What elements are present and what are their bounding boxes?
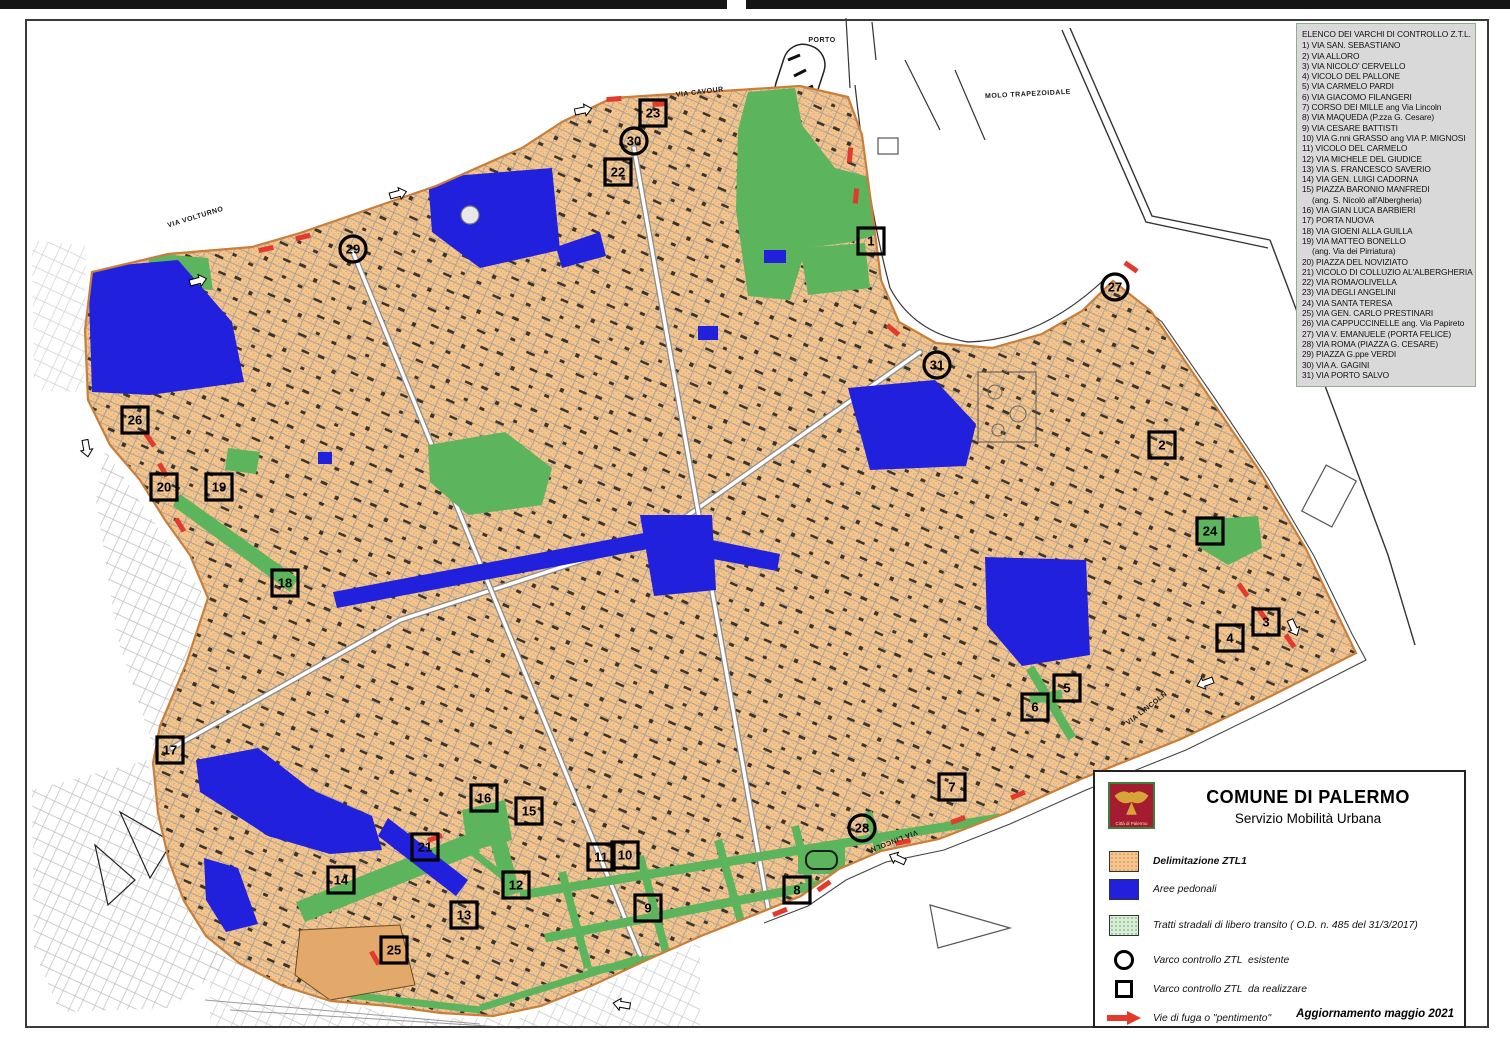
svg-text:16: 16 [477, 791, 491, 806]
svg-text:25: 25 [387, 943, 401, 958]
map-sheet-page: VIA VOLTURNOVIA CAVOURPORTOMOLO TRAPEZOI… [0, 0, 1510, 1040]
svg-text:13: 13 [457, 908, 471, 923]
legend-label: Varco controllo ZTL esistente [1153, 955, 1289, 966]
ztl-gate-list-item: 29) PIAZZA G.ppe VERDI [1302, 349, 1472, 359]
eagle-icon [1110, 784, 1153, 820]
street-label: MOLO TRAPEZOIDALE [985, 89, 1071, 100]
svg-text:2: 2 [1158, 438, 1165, 453]
legend-label: Varco controllo ZTL da realizzare [1153, 984, 1307, 995]
ztl-gate-list-item: 8) VIA MAQUEDA (P.zza G. Cesare) [1302, 112, 1472, 122]
legend-label: Tratti stradali di libero transito ( O.D… [1153, 920, 1418, 931]
ztl-gate-list-item: 26) VIA CAPPUCCINELLE ang. Via Papireto [1302, 318, 1472, 328]
svg-text:6: 6 [1031, 700, 1038, 715]
ztl-gate-list-item: 21) VICOLO DI COLLUZIO AL'ALBERGHERIA [1302, 267, 1472, 277]
ztl-gate-list-item: (ang. S. Nicolò all'Albergheria) [1302, 195, 1472, 205]
square-swatch-icon [1107, 980, 1141, 998]
svg-text:24: 24 [1203, 524, 1218, 539]
legend-row-ztl: Delimitazione ZTL1 [1107, 849, 1458, 873]
svg-text:14: 14 [334, 873, 349, 888]
svg-text:30: 30 [627, 134, 641, 149]
svg-text:28: 28 [855, 821, 869, 836]
ztl-gate-list-item: 12) VIA MICHELE DEL GIUDICE [1302, 154, 1472, 164]
svg-text:4: 4 [1226, 631, 1234, 646]
ztl-gate-list-item: 24) VIA SANTA TERESA [1302, 298, 1472, 308]
street-label: PORTO [808, 37, 835, 44]
legend-org-title: COMUNE DI PALERMO [1159, 787, 1457, 808]
svg-text:10: 10 [618, 848, 632, 863]
ztl-gate-list-item: 10) VIA G.nni GRASSO ang VIA P. MIGNOSI [1302, 133, 1472, 143]
legend-row-green: Tratti stradali di libero transito ( O.D… [1107, 913, 1458, 937]
ztl-gate-list-item: 7) CORSO DEI MILLE ang Via Lincoln [1302, 102, 1472, 112]
ztl-gates-list-panel: ELENCO DEI VARCHI DI CONTROLLO Z.T.L. 1)… [1296, 23, 1476, 387]
svg-text:5: 5 [1063, 681, 1070, 696]
legend-label: Delimitazione ZTL1 [1153, 856, 1247, 867]
svg-text:21: 21 [418, 840, 432, 855]
legend-panel: Città di Palermo COMUNE DI PALERMO Servi… [1093, 770, 1466, 1028]
ztl-gate-list-item: 13) VIA S. FRANCESCO SAVERIO [1302, 164, 1472, 174]
ztl-gate-list-item: 25) VIA GEN. CARLO PRESTINARI [1302, 308, 1472, 318]
circle-swatch-icon [1107, 950, 1141, 970]
ztl-gate-list-item: 23) VIA DEGLI ANGELINI [1302, 287, 1472, 297]
svg-text:11: 11 [594, 850, 608, 865]
blue-swatch-icon [1107, 879, 1141, 900]
legend-row-blue: Aree pedonali [1107, 877, 1458, 901]
legend-update-note: Aggiornamento maggio 2021 [1296, 1008, 1454, 1020]
ztl-swatch-icon [1107, 851, 1141, 872]
ztl-gate-list-item: 20) PIAZZA DEL NOVIZIATO [1302, 257, 1472, 267]
svg-text:31: 31 [930, 358, 944, 373]
ztl-gate-list-item: 3) VIA NICOLO' CERVELLO [1302, 61, 1472, 71]
svg-text:26: 26 [128, 413, 142, 428]
ztl-gate-list-item: 31) VIA PORTO SALVO [1302, 370, 1472, 380]
logo-caption: Città di Palermo [1110, 821, 1153, 826]
ztl-gate-list-item: 1) VIA SAN. SEBASTIANO [1302, 40, 1472, 50]
legend-row-square: Varco controllo ZTL da realizzare [1107, 977, 1458, 1001]
ztl-gates-list-title: ELENCO DEI VARCHI DI CONTROLLO Z.T.L. [1302, 29, 1472, 39]
svg-text:22: 22 [611, 165, 625, 180]
svg-text:19: 19 [212, 480, 226, 495]
legend-label: Aree pedonali [1153, 884, 1217, 895]
street-label: VIA VOLTURNO [167, 206, 225, 230]
svg-text:7: 7 [948, 780, 955, 795]
ztl-gate-list-item: 27) VIA V. EMANUELE (PORTA FELICE) [1302, 329, 1472, 339]
ztl-gate-list-item: 6) VIA GIACOMO FILANGERI [1302, 92, 1472, 102]
svg-text:18: 18 [278, 576, 292, 591]
legend-row-circle: Varco controllo ZTL esistente [1107, 948, 1458, 972]
svg-text:20: 20 [157, 480, 171, 495]
svg-text:29: 29 [346, 242, 360, 257]
ztl-gate-list-item: 9) VIA CESARE BATTISTI [1302, 123, 1472, 133]
svg-text:12: 12 [509, 878, 523, 893]
svg-text:15: 15 [522, 804, 536, 819]
ztl-gate-list-item: 2) VIA ALLORO [1302, 51, 1472, 61]
ztl-gate-list-item: 28) VIA ROMA (PIAZZA G. CESARE) [1302, 339, 1472, 349]
svg-text:23: 23 [646, 106, 660, 121]
svg-text:3: 3 [1262, 615, 1269, 630]
ztl-gate-list-item: 4) VICOLO DEL PALLONE [1302, 71, 1472, 81]
ztl-gate-list-item: 22) VIA ROMA/OLIVELLA [1302, 277, 1472, 287]
svg-text:27: 27 [1108, 280, 1122, 295]
svg-text:1: 1 [867, 234, 874, 249]
ztl-gate-list-item: 15) PIAZZA BARONIO MANFREDI [1302, 184, 1472, 194]
ztl-gate-list-item: 5) VIA CARMELO PARDI [1302, 81, 1472, 91]
ztl-gate-list-item: 11) VICOLO DEL CARMELO [1302, 143, 1472, 153]
ztl-gate-list-item: 16) VIA GIAN LUCA BARBIERI [1302, 205, 1472, 215]
ztl-gate-list-item: 30) VIA A. GAGINI [1302, 360, 1472, 370]
arrow-swatch-icon [1107, 1011, 1141, 1025]
ztl-gate-list-item: 14) VIA GEN. LUIGI CADORNA [1302, 174, 1472, 184]
svg-text:8: 8 [793, 883, 800, 898]
ztl-gate-list-item: 18) VIA GIOENI ALLA GUILLA [1302, 226, 1472, 236]
ztl-gate-list-item: 19) VIA MATTEO BONELLO [1302, 236, 1472, 246]
green-swatch-icon [1107, 915, 1141, 936]
svg-text:9: 9 [644, 901, 651, 916]
legend-label: Vie di fuga o "pentimento" [1153, 1013, 1271, 1024]
palermo-coat-of-arms-logo: Città di Palermo [1108, 782, 1155, 829]
svg-text:17: 17 [163, 743, 177, 758]
legend-org-subtitle: Servizio Mobilità Urbana [1159, 811, 1457, 826]
ztl-gates-list-items: 1) VIA SAN. SEBASTIANO2) VIA ALLORO3) VI… [1302, 40, 1472, 380]
ztl-gate-list-item: 17) PORTA NUOVA [1302, 215, 1472, 225]
legend-header: COMUNE DI PALERMO Servizio Mobilità Urba… [1159, 787, 1457, 826]
ztl-gate-list-item: (ang. Via dei Pirriatura) [1302, 246, 1472, 256]
